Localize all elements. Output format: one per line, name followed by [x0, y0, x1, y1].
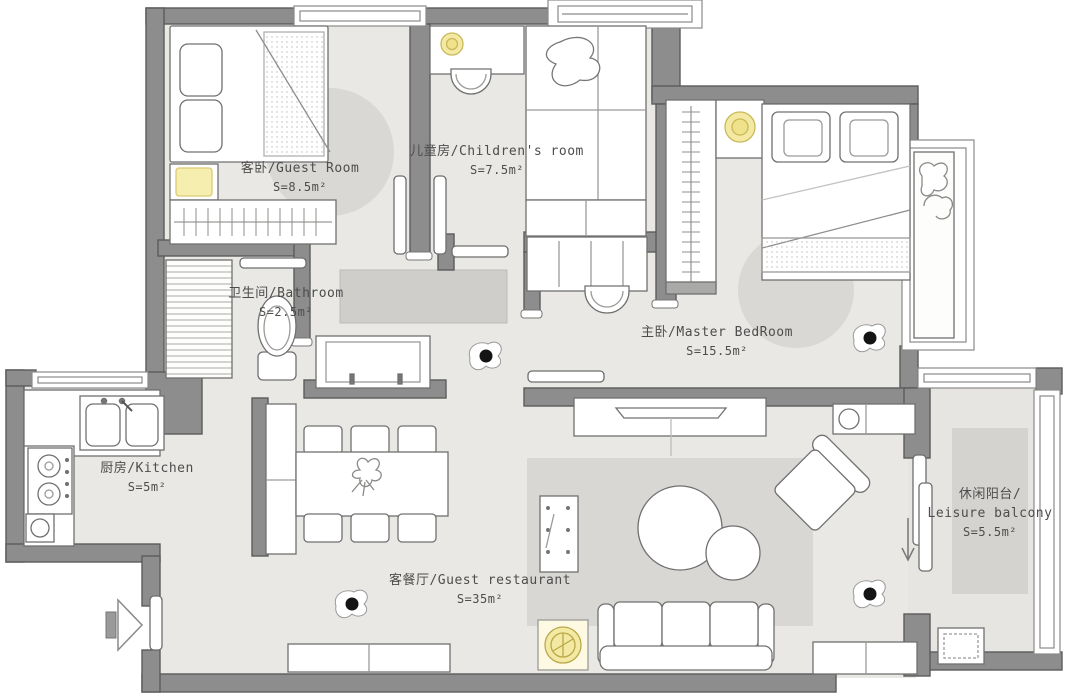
dining-chair [351, 514, 389, 542]
kitchen-sink [80, 396, 164, 450]
label-guest-room: 客卧/Guest Room S=8.5m² [241, 160, 360, 196]
side-console [540, 496, 578, 572]
plant-icon [853, 324, 885, 352]
master-bed [762, 104, 910, 280]
master-wardrobe [666, 100, 716, 294]
room-name: 儿童房/Children's room [410, 143, 584, 162]
aquarium-cabinet [833, 404, 915, 434]
guest-room-door [394, 176, 406, 254]
room-area: S=5.5m² [928, 524, 1053, 541]
guest-bed-mattress [264, 32, 324, 156]
dining-chair [304, 426, 342, 454]
room-name: 厨房/Kitchen [100, 460, 194, 479]
corridor-door-panel [452, 246, 508, 257]
room-area: S=8.5m² [241, 179, 360, 196]
plant-icon [469, 342, 501, 370]
guest-bed-pillow [180, 44, 222, 96]
children-room-door [434, 176, 446, 254]
entry-door-panel [150, 596, 162, 650]
children-room-window [548, 0, 702, 28]
label-kitchen: 厨房/Kitchen S=5m² [100, 460, 194, 496]
bathroom-sliding-door [240, 258, 306, 268]
label-leisure-balcony: 休闲阳台/ Leisure balcony S=5.5m² [928, 486, 1053, 541]
label-living-dining: 客餐厅/Guest restaurant S=35m² [389, 572, 571, 608]
balcony-top-window [918, 368, 1036, 388]
guest-room-furniture [170, 26, 336, 244]
shoe-cabinet [288, 644, 450, 672]
dining-sideboard [266, 404, 296, 554]
floor-lamp-icon [538, 620, 588, 670]
shower [166, 260, 232, 378]
children-dresser [526, 200, 646, 236]
room-area: S=7.5m² [410, 162, 584, 179]
corridor-cabinet-block [340, 270, 507, 323]
label-children-room: 儿童房/Children's room S=7.5m² [410, 143, 584, 179]
vanity-double-sink [316, 336, 430, 388]
guest-lamp-icon [176, 168, 212, 196]
room-area: S=5m² [100, 479, 194, 496]
balcony-side-cabinet [813, 642, 917, 674]
room-area: S=15.5m² [641, 343, 793, 360]
entry-arrow-icon [106, 600, 142, 650]
guest-bed-pillow [180, 100, 222, 152]
coffee-table-small [706, 526, 760, 580]
room-name: 主卧/Master BedRoom [641, 324, 793, 343]
room-name: 客卧/Guest Room [241, 160, 360, 179]
bay-window-bench [914, 152, 954, 338]
room-name: 客餐厅/Guest restaurant [389, 572, 571, 591]
room-area: S=35m² [389, 591, 571, 608]
label-master-bedroom: 主卧/Master BedRoom S=15.5m² [641, 324, 793, 360]
plant-icon [853, 580, 885, 608]
room-name-en: Leisure balcony [928, 505, 1053, 524]
label-bathroom: 卫生间/Bathroom S=2.5m² [228, 285, 343, 321]
kitchen-stove [28, 448, 72, 514]
room-area: S=2.5m² [228, 304, 343, 321]
hallway-sliding-door [528, 371, 604, 382]
kitchen-corner-unit [26, 514, 54, 542]
room-name: 休闲阳台/ [928, 486, 1053, 505]
floor-plan: 客卧/Guest Room S=8.5m² 儿童房/Children's roo… [0, 0, 1080, 699]
plant-icon [335, 590, 367, 618]
children-bed-blanket [546, 37, 599, 85]
room-name: 卫生间/Bathroom [228, 285, 343, 304]
sofa [598, 602, 774, 670]
master-lamp-icon [725, 112, 755, 142]
guest-room-window [294, 6, 426, 26]
balcony-storage-box [938, 628, 984, 664]
dining-chair [398, 426, 436, 454]
dining-chair [398, 514, 436, 542]
hallway-desk [527, 237, 647, 291]
dining-chair [351, 426, 389, 454]
guest-wardrobe [170, 200, 336, 244]
dining-chair [304, 514, 342, 542]
dining-table [296, 452, 448, 516]
dining-furniture [266, 404, 448, 554]
kitchen-window [32, 372, 148, 388]
